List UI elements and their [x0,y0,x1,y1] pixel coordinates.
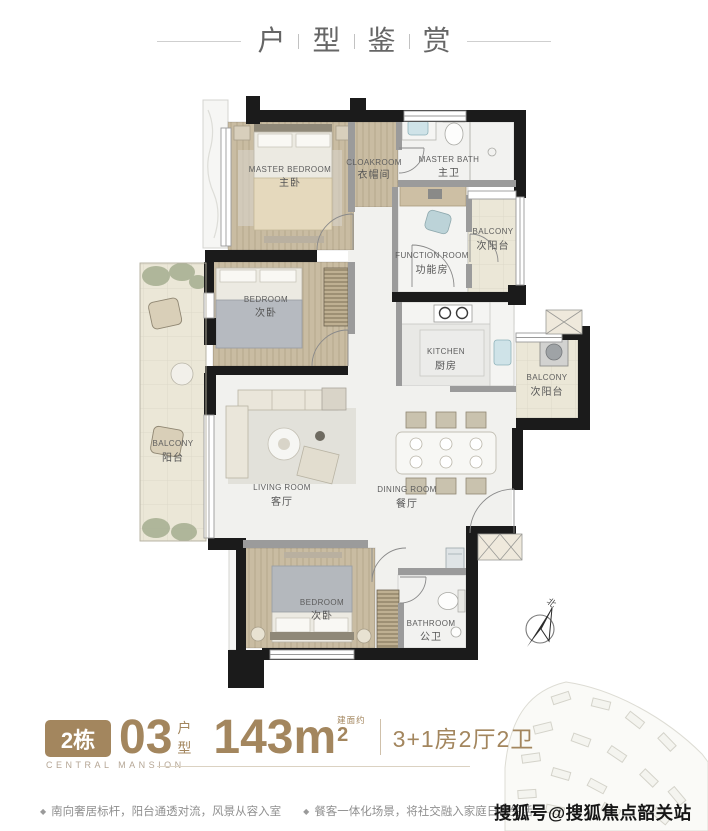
label-master-bedroom-en: MASTER BEDROOM [249,165,332,174]
area-value: 143m 建面约 2 [203,714,365,757]
label-balcony-right-en: BALCONY [526,373,567,382]
label-dining-cn: 餐厅 [396,497,418,510]
diamond-bullet-icon: ◆ [303,807,309,816]
floor-plan: MASTER BEDROOM 主卧 CLOAKROOM 衣帽间 MASTER B… [0,0,708,831]
feature-text: 南向奢居标杆，阳台通透对流，风景从容入室 [51,803,281,819]
label-cloakroom-cn: 衣帽间 [358,168,391,181]
diamond-bullet-icon: ◆ [40,807,46,816]
label-master-bedroom-cn: 主卧 [279,176,301,189]
label-function-en: FUNCTION ROOM [395,251,469,260]
label-living-cn: 客厅 [271,495,293,508]
feature-list: ◆ 南向奢居标杆，阳台通透对流，风景从容入室 ◆ 餐客一体化场景，将社交融入家庭… [40,803,533,819]
label-kitchen-en: KITCHEN [427,347,465,356]
label-balcony-right-cn: 次阳台 [531,385,564,398]
label-balcony-tr-en: BALCONY [472,227,513,236]
label-cloakroom-en: CLOAKROOM [346,158,402,167]
label-bedroom3-cn: 次卧 [311,609,333,622]
area-number: 143m [213,718,336,757]
label-master-bath-cn: 主卫 [438,167,460,179]
label-balcony-left-cn: 阳台 [162,451,184,464]
label-balcony-left-en: BALCONY [152,439,193,448]
unit-type-char: 户 [177,721,191,735]
north-compass-icon: 北 [526,596,558,647]
watermark-text: 搜狐号@搜狐焦点韶关站 [494,800,692,825]
unit-number: 03 [119,718,172,757]
layout-spec: 3+1房2厅2卫 [393,720,535,754]
compass-north-label: 北 [545,596,558,609]
label-bedroom2-en: BEDROOM [244,295,288,304]
unit-info-bar: 2栋 03 户 型 143m 建面约 2 3+1房2厅2卫 [45,714,534,757]
brand-rule [157,766,470,767]
unit-type-char: 型 [177,741,191,755]
label-master-bath-en: MASTER BATH [419,155,480,164]
label-bedroom2-cn: 次卧 [255,306,277,319]
building-badge: 2栋 [45,720,111,757]
label-balcony-tr-cn: 次阳台 [477,239,510,252]
label-bedroom3-en: BEDROOM [300,598,344,607]
label-living-en: LIVING ROOM [253,483,311,492]
unit-type-label: 户 型 [177,721,191,755]
feature-item: ◆ 南向奢居标杆，阳台通透对流，风景从容入室 [40,803,281,819]
label-kitchen-cn: 厨房 [435,359,457,372]
label-bathroom-en: BATHROOM [407,619,456,628]
label-bathroom-cn: 公卫 [420,632,442,643]
area-superscript: 2 [337,726,348,744]
brand-name: CENTRAL MANSION [46,760,185,770]
label-dining-en: DINING ROOM [377,485,437,494]
label-function-cn: 功能房 [416,263,449,276]
info-divider [380,719,381,755]
